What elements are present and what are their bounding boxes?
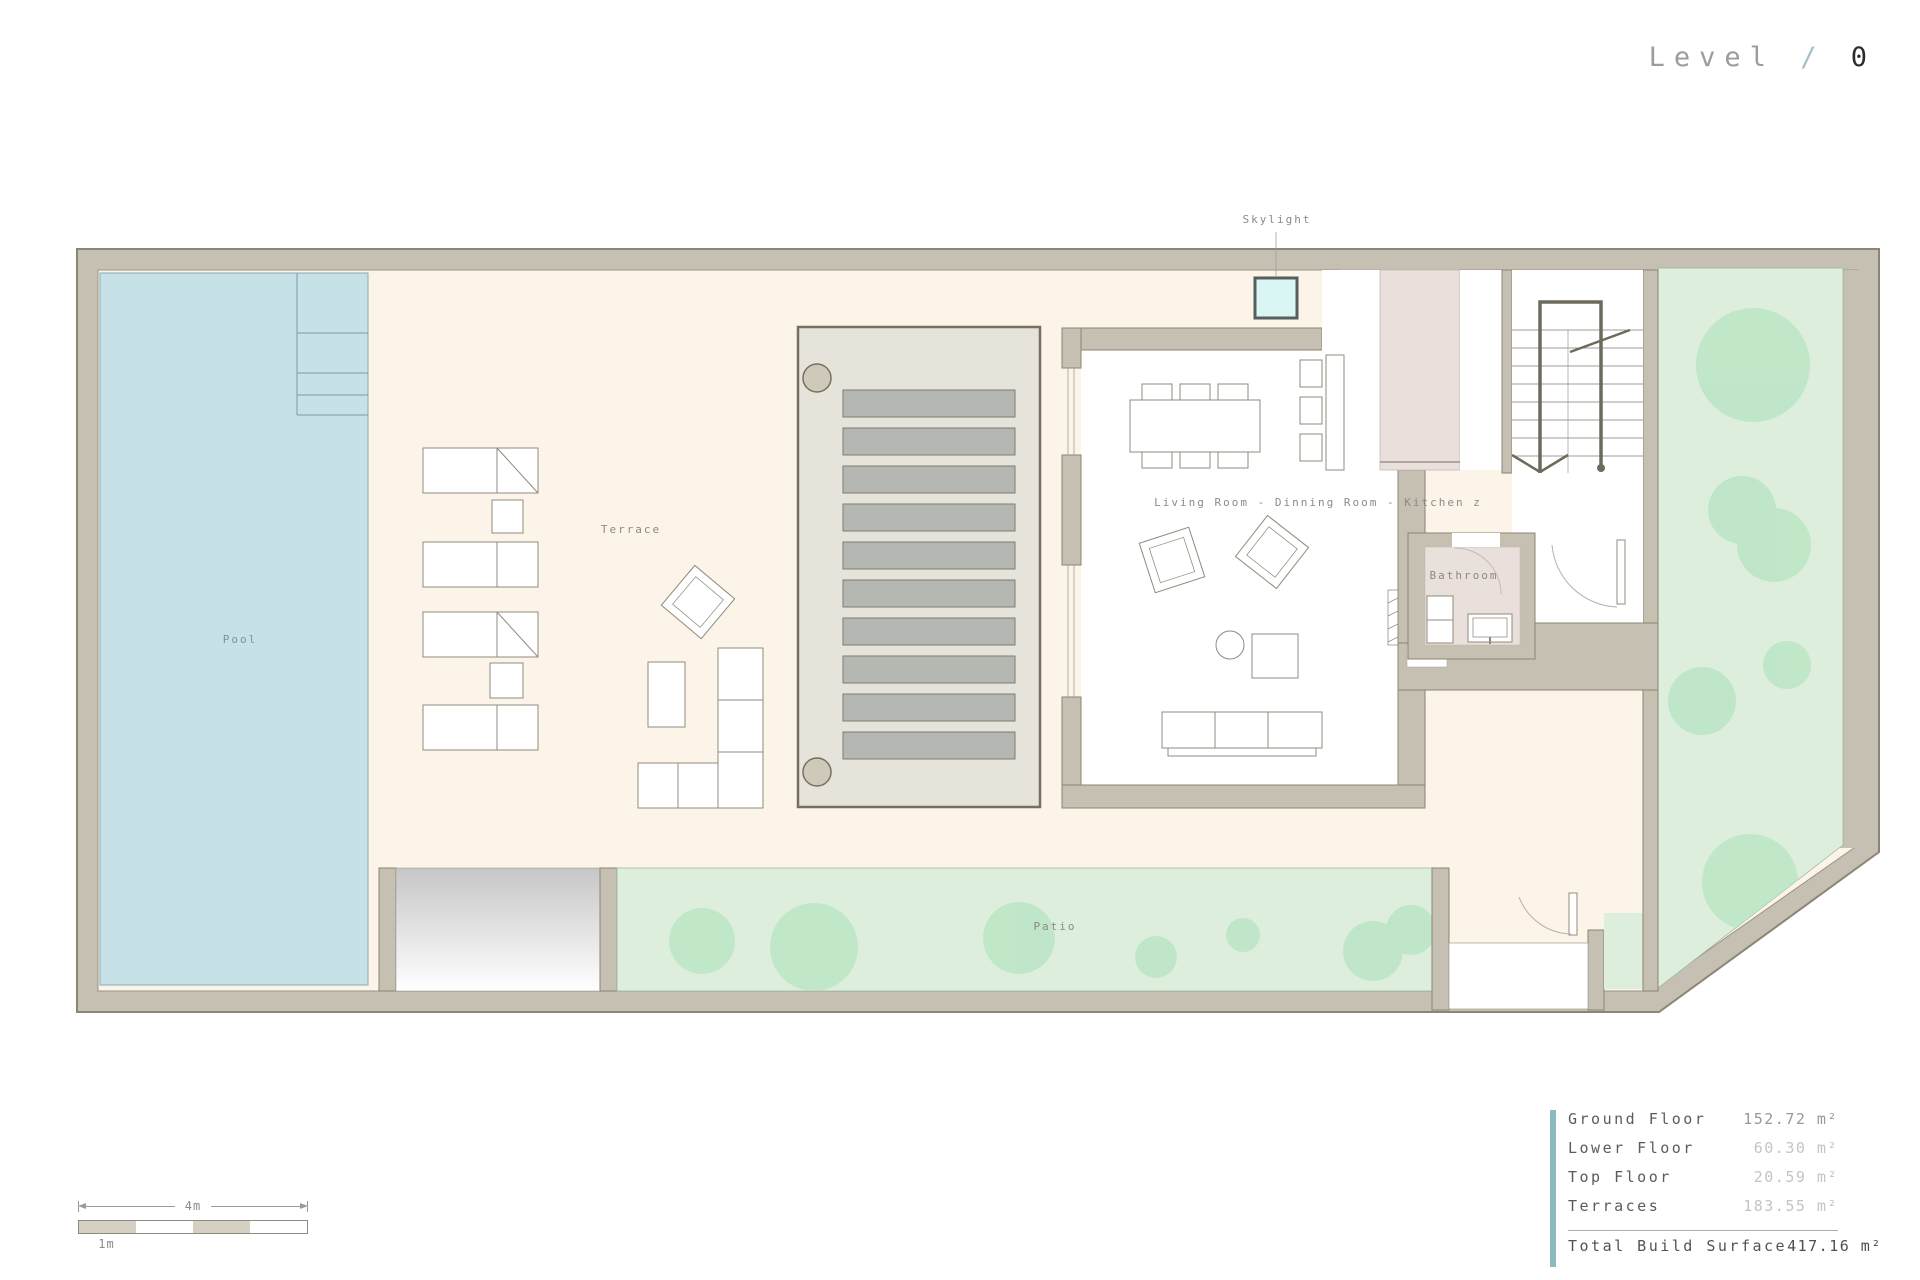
pool bbox=[100, 273, 368, 985]
pergola bbox=[798, 327, 1040, 807]
side-table bbox=[490, 663, 523, 698]
scale-dimension-line: 4m bbox=[78, 1198, 308, 1214]
level-separator: / bbox=[1800, 42, 1825, 73]
canvas: Level / 0 Pool Terrace Living Room - Din… bbox=[0, 0, 1920, 1280]
kitchen-island bbox=[1300, 355, 1344, 470]
table-row: Terraces 183.55 m² bbox=[1568, 1197, 1838, 1226]
dining-set bbox=[1130, 384, 1260, 468]
total-label: Total Build Surface bbox=[1568, 1237, 1787, 1255]
arrow-left-icon bbox=[78, 1203, 86, 1209]
coffee-table bbox=[648, 662, 685, 727]
bathroom bbox=[1388, 533, 1535, 659]
row-value: 60.30 m² bbox=[1754, 1139, 1838, 1157]
level-label: Level bbox=[1649, 42, 1775, 73]
round-table bbox=[1216, 631, 1244, 659]
row-label: Ground Floor bbox=[1568, 1110, 1706, 1128]
level-number: 0 bbox=[1851, 42, 1876, 73]
total-value: 417.16 m² bbox=[1787, 1237, 1882, 1255]
kitchen bbox=[1300, 270, 1502, 470]
dining-table bbox=[1130, 400, 1260, 452]
floor-plan bbox=[0, 0, 1920, 1280]
table-divider bbox=[1568, 1230, 1838, 1231]
pergola-column bbox=[803, 758, 831, 786]
scale-unit-label: 1m bbox=[78, 1237, 135, 1251]
table-row: Top Floor 20.59 m² bbox=[1568, 1168, 1838, 1197]
scale-total-label: 4m bbox=[185, 1199, 201, 1213]
table-row: Lower Floor 60.30 m² bbox=[1568, 1139, 1838, 1168]
scale-bar: 4m 1m bbox=[78, 1198, 308, 1251]
row-label: Top Floor bbox=[1568, 1168, 1672, 1186]
row-label: Terraces bbox=[1568, 1197, 1660, 1215]
bathroom-label: Bathroom bbox=[1430, 569, 1499, 582]
sun-lounger bbox=[423, 612, 538, 657]
sun-lounger bbox=[423, 448, 538, 493]
row-label: Lower Floor bbox=[1568, 1139, 1695, 1157]
sink bbox=[1468, 614, 1512, 644]
sun-lounger bbox=[423, 542, 538, 587]
row-value: 183.55 m² bbox=[1743, 1197, 1838, 1215]
pergola-column bbox=[803, 364, 831, 392]
toilet bbox=[1427, 596, 1453, 643]
side-table bbox=[492, 500, 523, 533]
skylight-label: Skylight bbox=[1243, 213, 1312, 226]
table-row: Ground Floor 152.72 m² bbox=[1568, 1110, 1838, 1139]
table-total-row: Total Build Surface 417.16 m² bbox=[1568, 1237, 1838, 1267]
patio-label: Patio bbox=[1033, 920, 1076, 933]
scale-bar-segments bbox=[78, 1220, 308, 1234]
living-room-label: Living Room - Dinning Room - Kitchen z bbox=[1154, 496, 1482, 509]
patio bbox=[617, 868, 1436, 991]
sun-lounger bbox=[423, 705, 538, 750]
area-table: Ground Floor 152.72 m² Lower Floor 60.30… bbox=[1550, 1110, 1838, 1267]
page-title: Level / 0 bbox=[1649, 42, 1876, 73]
row-value: 20.59 m² bbox=[1754, 1168, 1838, 1186]
terrace-label: Terrace bbox=[601, 523, 661, 536]
pool-label: Pool bbox=[223, 633, 258, 646]
row-value: 152.72 m² bbox=[1743, 1110, 1838, 1128]
side-table bbox=[1252, 634, 1298, 678]
ramp bbox=[379, 868, 617, 991]
sofa bbox=[1162, 712, 1322, 756]
